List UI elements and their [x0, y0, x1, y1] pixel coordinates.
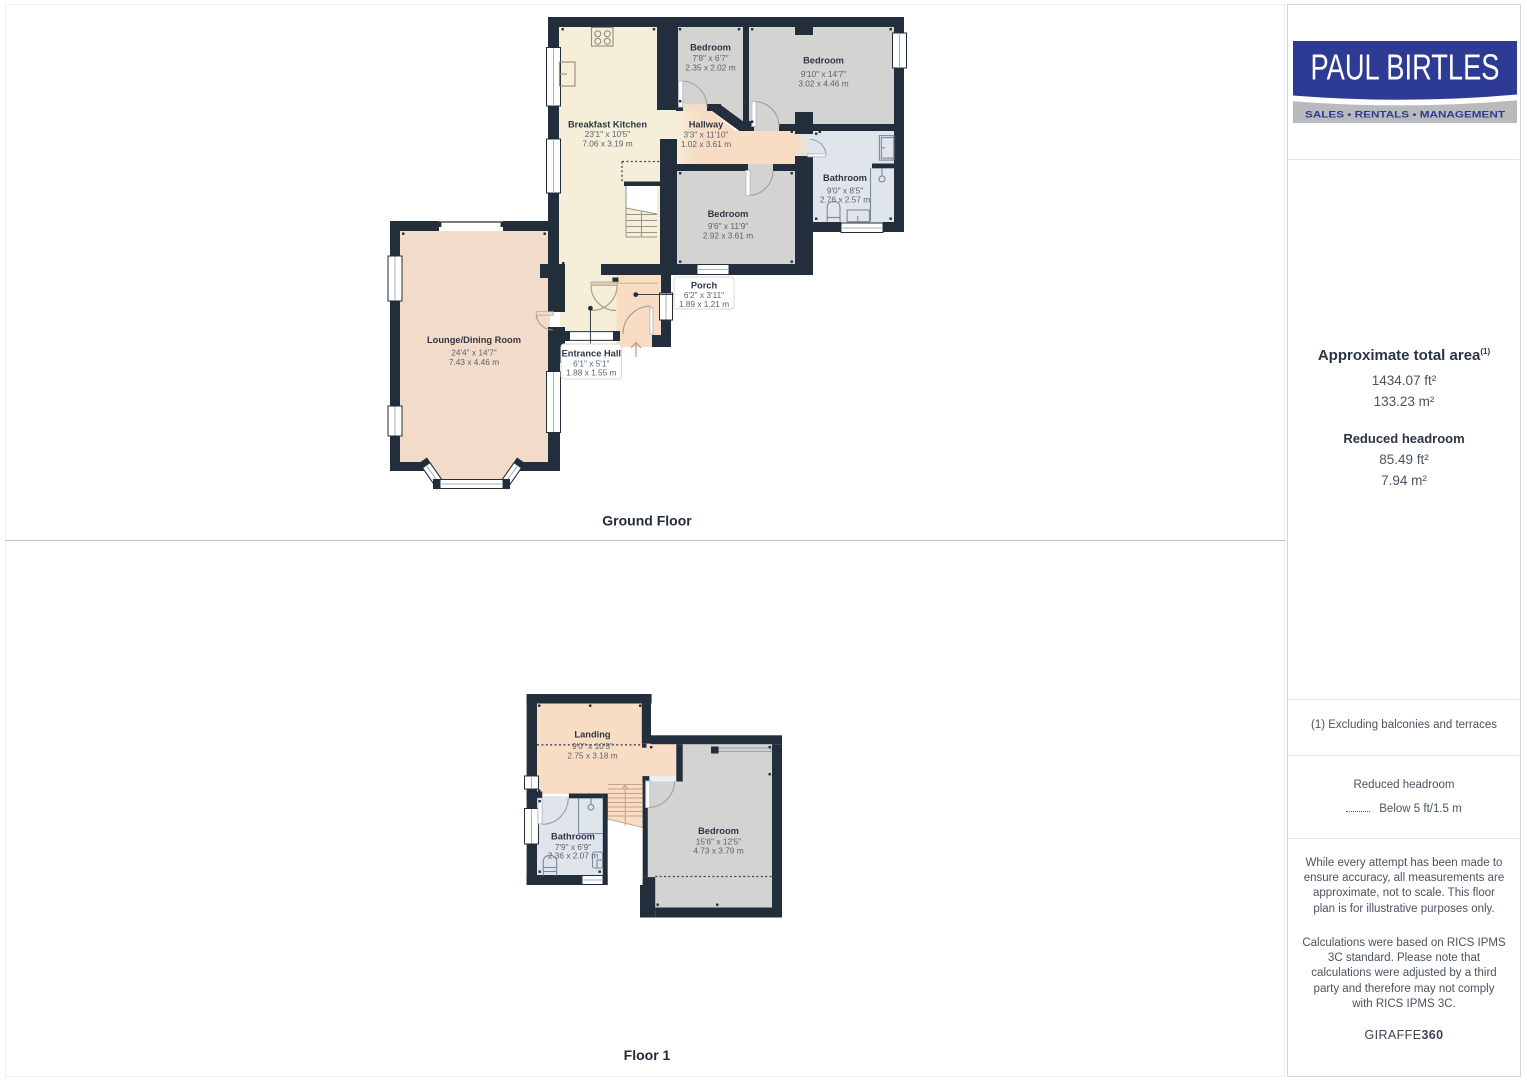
svg-text:9'10" x 14'7": 9'10" x 14'7" [801, 69, 847, 79]
svg-text:9'6" x 11'9": 9'6" x 11'9" [708, 221, 748, 231]
svg-text:PAUL BIRTLES: PAUL BIRTLES [1310, 47, 1499, 88]
svg-text:3'3" x 11'10": 3'3" x 11'10" [684, 129, 729, 139]
svg-text:Floor 1: Floor 1 [624, 1047, 671, 1063]
svg-text:2.76 x 2.57 m: 2.76 x 2.57 m [820, 195, 870, 205]
svg-text:1.02 x 3.61 m: 1.02 x 3.61 m [681, 139, 731, 149]
svg-text:2.75 x 3.18 m: 2.75 x 3.18 m [567, 750, 617, 760]
svg-text:Bedroom: Bedroom [708, 209, 749, 219]
svg-text:Landing: Landing [574, 730, 610, 740]
svg-text:Bedroom: Bedroom [698, 826, 739, 836]
svg-text:1.88 x 1.55 m: 1.88 x 1.55 m [566, 368, 616, 378]
svg-text:2.92 x 3.61 m: 2.92 x 3.61 m [703, 231, 753, 241]
svg-text:Lounge/Dining Room: Lounge/Dining Room [427, 335, 521, 345]
svg-text:Bathroom: Bathroom [823, 173, 867, 183]
svg-text:7'8" x 6'7": 7'8" x 6'7" [692, 53, 728, 63]
svg-text:7.06 x 3.19 m: 7.06 x 3.19 m [582, 138, 632, 148]
svg-text:1.89 x 1.21 m: 1.89 x 1.21 m [679, 299, 729, 309]
svg-text:7.43 x 4.46 m: 7.43 x 4.46 m [449, 357, 499, 367]
svg-text:Bedroom: Bedroom [690, 43, 731, 53]
svg-text:Bedroom: Bedroom [803, 56, 844, 66]
svg-text:2.36 x 2.07 m: 2.36 x 2.07 m [548, 851, 598, 861]
svg-text:4.73 x 3.79 m: 4.73 x 3.79 m [693, 845, 743, 855]
svg-text:SALES • RENTALS • MANAGEMENT: SALES • RENTALS • MANAGEMENT [1305, 110, 1505, 121]
svg-text:Entrance Hall: Entrance Hall [562, 349, 621, 359]
svg-text:3.02 x 4.46 m: 3.02 x 4.46 m [798, 79, 848, 89]
svg-text:Ground Floor: Ground Floor [602, 513, 692, 529]
svg-text:Hallway: Hallway [689, 120, 724, 130]
svg-text:2.35 x 2.02 m: 2.35 x 2.02 m [685, 62, 735, 72]
svg-text:Breakfast Kitchen: Breakfast Kitchen [568, 119, 647, 129]
svg-text:Bathroom: Bathroom [551, 832, 595, 842]
